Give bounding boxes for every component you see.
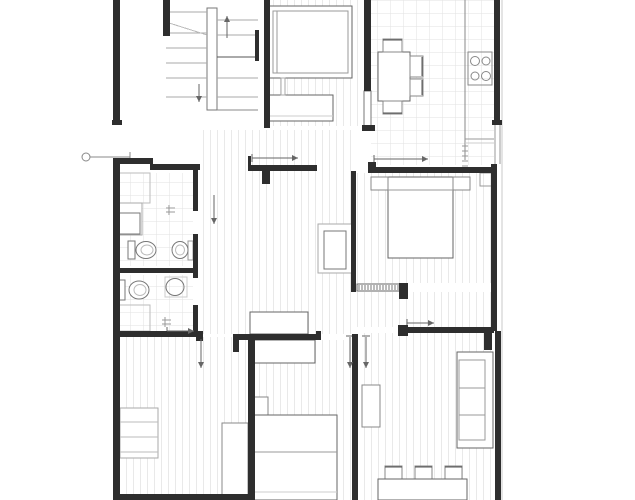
wall-right-ext-top [494, 0, 500, 122]
wall-bath-right-a [193, 167, 198, 211]
toilet-1-tank [128, 241, 135, 259]
wall-entry-step-a [113, 158, 153, 164]
wall-bm-living-divider [352, 334, 358, 500]
living-table [378, 479, 467, 500]
arrow-stairs-up-head [224, 16, 230, 22]
floor-plan-canvas [0, 0, 635, 500]
wall-left-main [113, 158, 120, 500]
wall-left-upper-foot [112, 120, 122, 125]
radiator-bedroom-right [357, 284, 400, 291]
vanity-1 [118, 203, 142, 235]
dresser-bottom-mid [252, 340, 315, 363]
wall-bedroom1-dining [364, 0, 371, 91]
wall-living-top-post [398, 325, 408, 336]
arrow-stairs-down-head [196, 96, 202, 102]
floor-passage-right [356, 292, 495, 327]
dining-chair-south [383, 101, 402, 114]
wall-bedroom-bm-top-post [233, 334, 239, 352]
wall-bl-bm-divider [248, 340, 255, 500]
bidet-1-bowl [172, 242, 188, 259]
living-chair-1 [385, 466, 402, 479]
wall-bath-right-c [193, 305, 198, 331]
living-chair-2 [415, 466, 432, 479]
wall-stair-right-seg [255, 30, 259, 61]
wall-bedroom-right-top [368, 167, 494, 173]
door-leaf-bedroom-top [364, 91, 371, 127]
wall-right-ext-bottom [495, 331, 501, 500]
wardrobe-bottom-left [120, 408, 158, 458]
hall-sideboard [250, 312, 308, 334]
wall-bath-bottom-corner [196, 331, 203, 341]
living-chair-3 [445, 466, 462, 479]
radiator-bedroom-right-box [357, 284, 400, 291]
bed-top-frame [266, 6, 352, 78]
bidet-1-ledge [188, 241, 193, 260]
nightstand-right-w [371, 177, 388, 190]
dining-chair-east-1 [410, 56, 423, 77]
dining-chair-north [383, 39, 402, 52]
cabinet-bottom-left [222, 423, 248, 500]
hatched-elements [357, 284, 400, 291]
wall-bath-mid [118, 268, 195, 273]
nightstand-bottom-mid [253, 397, 268, 415]
dining-chair-east-2 [410, 79, 423, 96]
wall-bedroom1-dining-foot [362, 125, 375, 131]
wall-bedroom-bm-top [233, 334, 321, 340]
wall-entry-step-b [150, 164, 200, 170]
wall-hall-t-stub [262, 171, 270, 184]
wall-living-top [398, 327, 494, 333]
wall-bottom-left [113, 494, 255, 500]
wall-right-ext-top-foot [492, 120, 502, 125]
sofa-frame [457, 352, 493, 448]
wall-hall-t-tick [248, 156, 251, 165]
dresser-top-bedroom [265, 95, 333, 121]
wall-bedroom-right-left [351, 171, 356, 292]
entry-door-knob [82, 153, 90, 161]
floor-plan [0, 0, 635, 500]
wall-living-top-jog [484, 333, 492, 350]
arrow-stairs-down [196, 84, 202, 102]
console-living [362, 385, 380, 427]
wall-bedroom-bm-top-cap [316, 331, 321, 340]
stair-stringer [207, 8, 217, 110]
wall-stairhall-bedroom [264, 0, 270, 128]
nightstand-right-e [453, 177, 470, 190]
bed-right-frame [388, 177, 453, 258]
wall-bedroom-right-corner-post [399, 283, 408, 299]
wall-hall-t [248, 165, 317, 171]
dining-table [378, 52, 410, 101]
wall-bedroom-right-top-post [368, 162, 376, 173]
wall-right-ext-mid [491, 164, 497, 331]
floor-bath-2 [120, 275, 193, 331]
wall-left-upper [113, 0, 120, 122]
bed-bottom-mid-frame [253, 415, 337, 500]
wall-stair-stub [163, 0, 170, 36]
